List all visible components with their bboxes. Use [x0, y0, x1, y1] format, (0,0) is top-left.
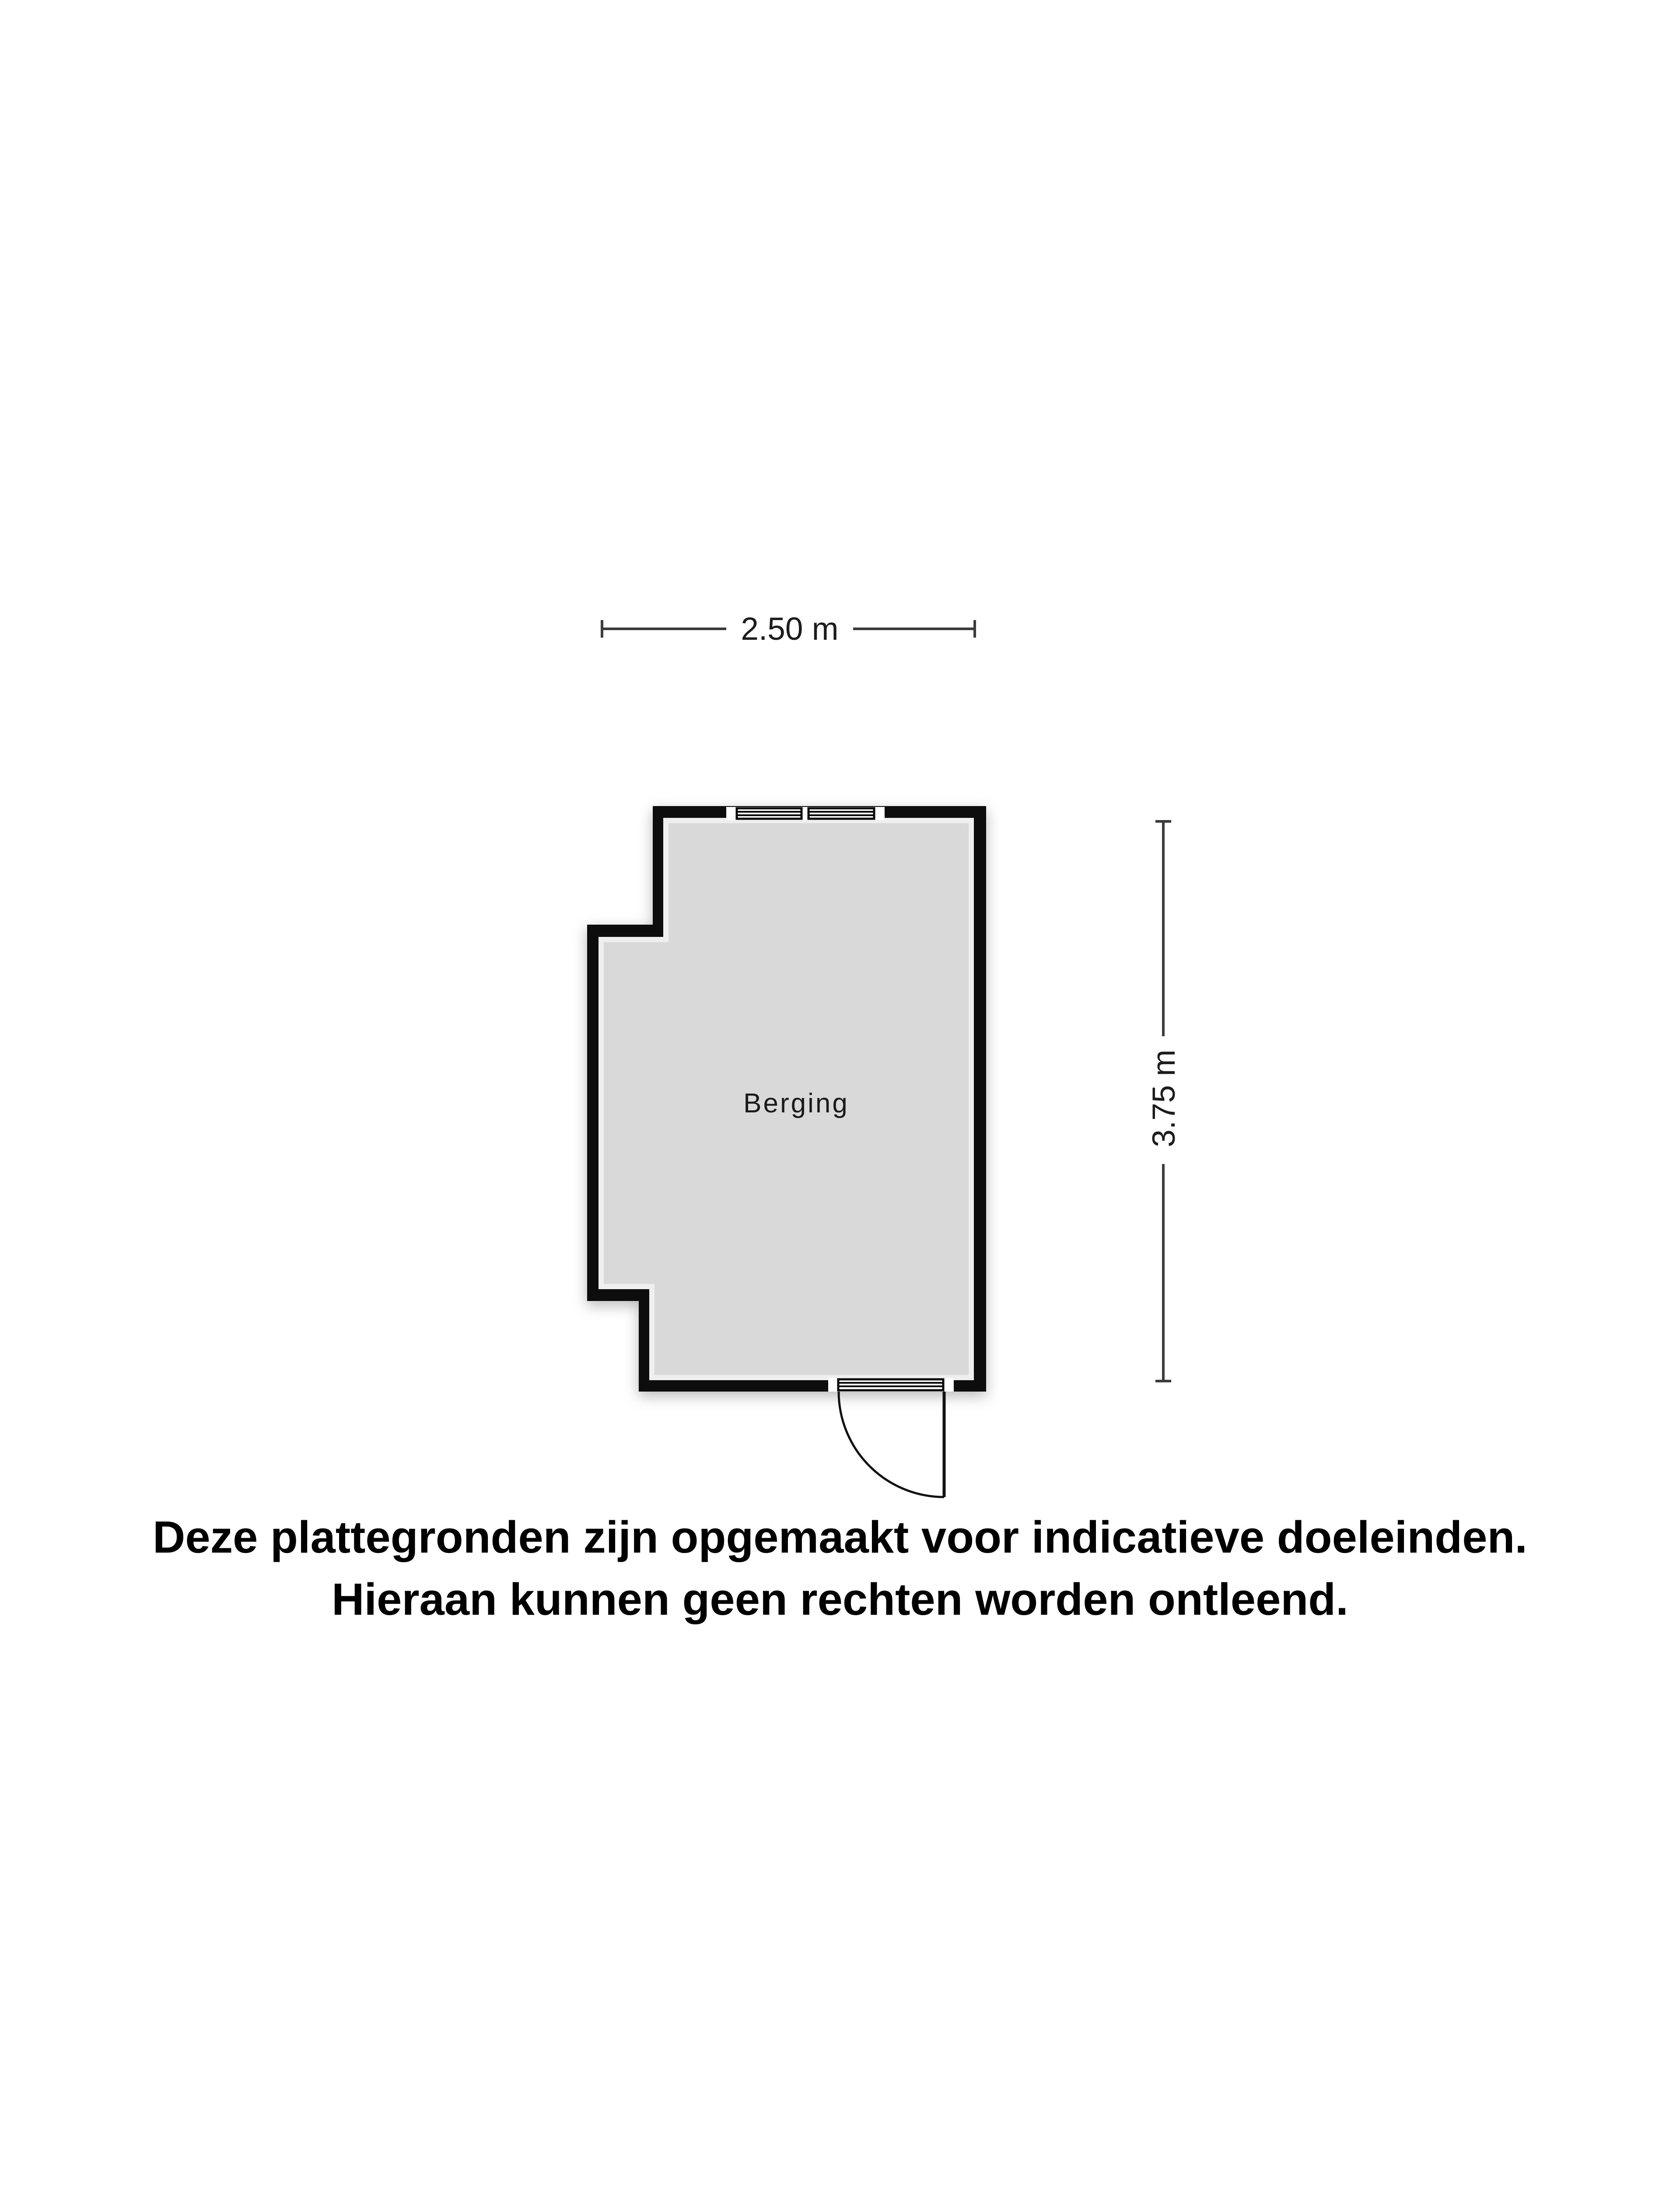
height-dimension: 3.75 m [1146, 821, 1182, 1381]
window-pane-left [737, 808, 801, 819]
width-dimension-label: 2.50 m [741, 611, 838, 647]
entrance-door [828, 1378, 954, 1497]
floorplan-canvas: 2.50 m 3.75 m [0, 0, 1680, 2188]
disclaimer-line-1: Deze plattegronden zijn opgemaakt voor i… [153, 1512, 1527, 1562]
disclaimer: Deze plattegronden zijn opgemaakt voor i… [153, 1512, 1527, 1624]
disclaimer-line-2: Hieraan kunnen geen rechten worden ontle… [332, 1574, 1348, 1624]
floorplan-page: 2.50 m 3.75 m [0, 0, 1680, 2188]
window-pane-right [808, 808, 874, 819]
height-dimension-label: 3.75 m [1146, 1049, 1182, 1147]
door-threshold [838, 1379, 943, 1390]
door-swing-arc [839, 1392, 944, 1497]
room-label: Berging [743, 1088, 849, 1119]
width-dimension: 2.50 m [602, 611, 975, 647]
top-window [726, 807, 885, 820]
